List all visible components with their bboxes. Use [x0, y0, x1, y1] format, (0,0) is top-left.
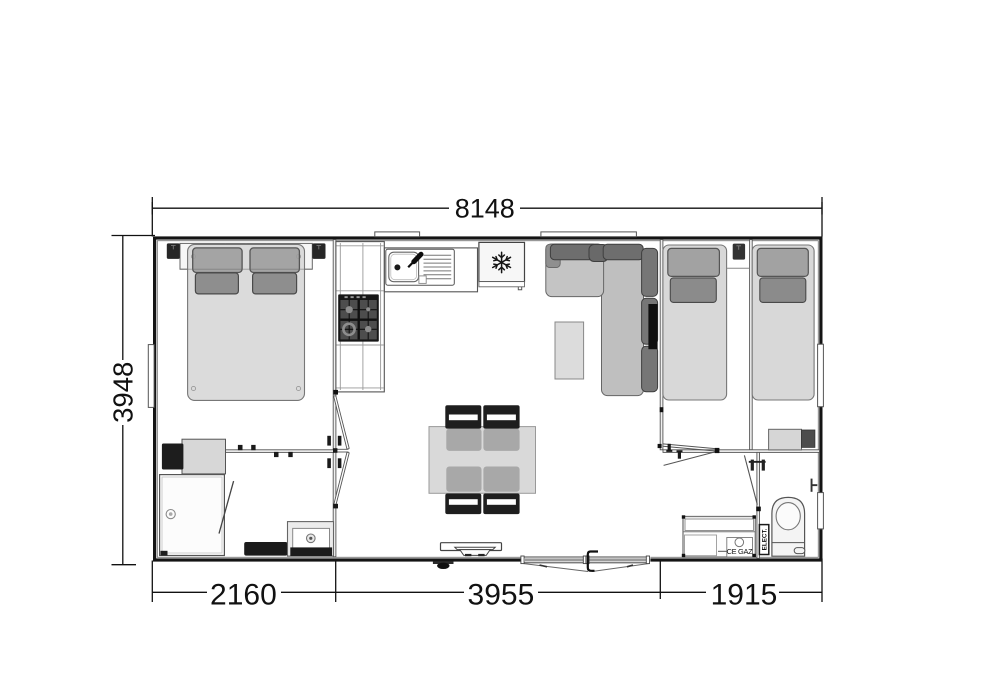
svg-text:2160: 2160: [210, 578, 277, 611]
svg-text:8148: 8148: [455, 194, 515, 224]
svg-text:ELECT.: ELECT.: [762, 528, 769, 550]
svg-text:CE GAZ: CE GAZ: [727, 547, 753, 556]
svg-text:1915: 1915: [711, 578, 778, 611]
svg-text:3955: 3955: [468, 578, 535, 611]
svg-text:3948: 3948: [107, 362, 138, 423]
